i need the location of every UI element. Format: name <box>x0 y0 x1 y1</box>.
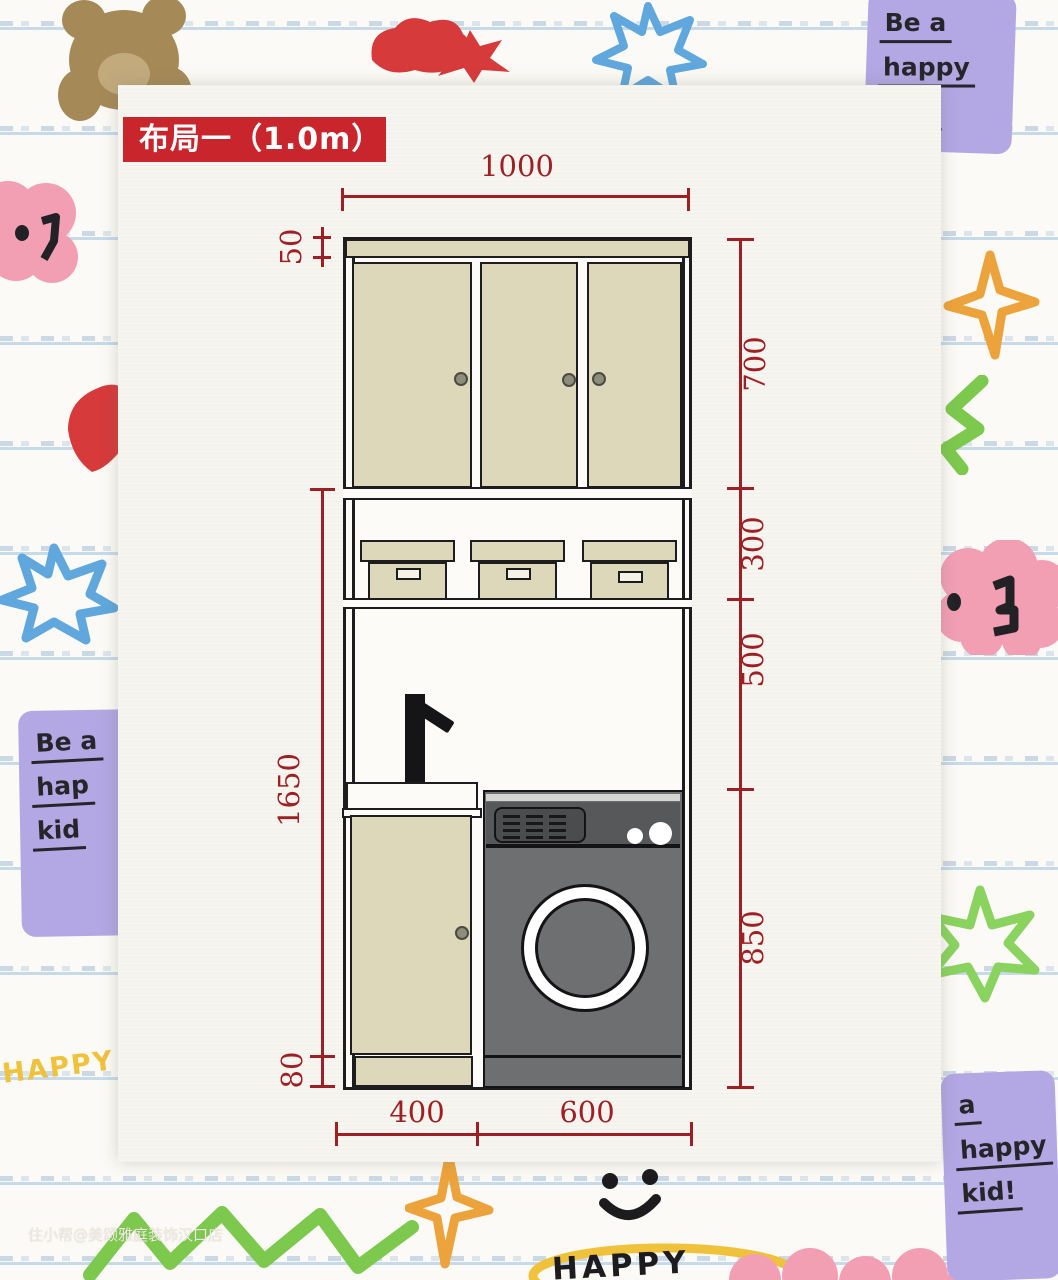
box-handle-slot <box>618 571 643 583</box>
dim-line <box>321 227 324 267</box>
dim-lower-total-label: 1650 <box>272 753 306 827</box>
scene: Be a happy kid! Be a hap <box>0 0 1058 1280</box>
dim-tick <box>687 188 690 211</box>
dim-tick <box>335 1122 338 1146</box>
storage-box-lid <box>582 540 677 562</box>
box-handle-slot <box>506 568 531 580</box>
dim-line <box>321 488 324 1088</box>
dim-line <box>336 1133 693 1136</box>
dim-sink-width-label: 400 <box>389 1095 444 1129</box>
washing-machine <box>483 790 684 1088</box>
display-dashes <box>549 815 566 842</box>
upper-cabinet-bottom-band <box>343 487 692 500</box>
dim-tick <box>310 1085 335 1088</box>
dim-tick <box>341 188 344 211</box>
dim-tick <box>727 238 754 241</box>
dim-tick <box>313 236 331 239</box>
dim-line <box>343 195 690 198</box>
dim-tick <box>727 788 754 791</box>
title-badge: 布局一（1.0m） <box>123 117 386 162</box>
dim-tick <box>690 1122 693 1146</box>
washer-control-panel <box>486 802 680 848</box>
washer-door <box>521 884 649 1012</box>
door-handle-icon <box>562 373 576 387</box>
dim-shelf-section-label: 300 <box>736 516 770 571</box>
storage-box-lid <box>470 540 565 562</box>
dim-tick <box>727 1086 754 1089</box>
washer-top-strip <box>486 794 680 801</box>
dim-tick <box>310 488 335 491</box>
door-handle-icon <box>592 372 606 386</box>
washer-display <box>494 807 586 843</box>
dim-kick-plate-label: 80 <box>275 1052 309 1089</box>
box-handle-slot <box>396 568 421 580</box>
display-dashes <box>526 815 543 842</box>
dim-open-section-label: 500 <box>736 632 770 687</box>
cabinet-top-strip <box>345 239 690 258</box>
dim-upper-cabinet-label: 700 <box>738 336 772 391</box>
storage-box-lid <box>360 540 455 562</box>
door-handle-icon <box>454 372 468 386</box>
layout-diagram: 布局一（1.0m） <box>0 0 1058 1280</box>
kick-plate <box>354 1056 473 1087</box>
door-handle-icon <box>455 926 469 940</box>
dim-tick <box>727 487 754 490</box>
shelf-band <box>343 598 692 609</box>
dim-top-strip-label: 50 <box>274 229 308 266</box>
washer-door-glass <box>535 898 635 998</box>
dim-washer-width-label: 600 <box>559 1095 614 1129</box>
dim-washer-section-label: 850 <box>736 910 770 965</box>
watermark: 住小帮@美颂雅庭装饰汉口店 <box>28 1224 223 1245</box>
dim-tick <box>476 1122 479 1146</box>
display-dashes <box>503 815 520 842</box>
washer-knob-small <box>627 828 643 844</box>
washer-base-line <box>485 1055 681 1058</box>
dim-tick <box>310 1055 335 1058</box>
washer-knob-large <box>649 822 672 845</box>
dim-top-width-label: 1000 <box>480 149 554 183</box>
dim-tick <box>313 256 331 259</box>
dim-tick <box>727 598 754 601</box>
sink-cabinet-door <box>350 815 472 1055</box>
